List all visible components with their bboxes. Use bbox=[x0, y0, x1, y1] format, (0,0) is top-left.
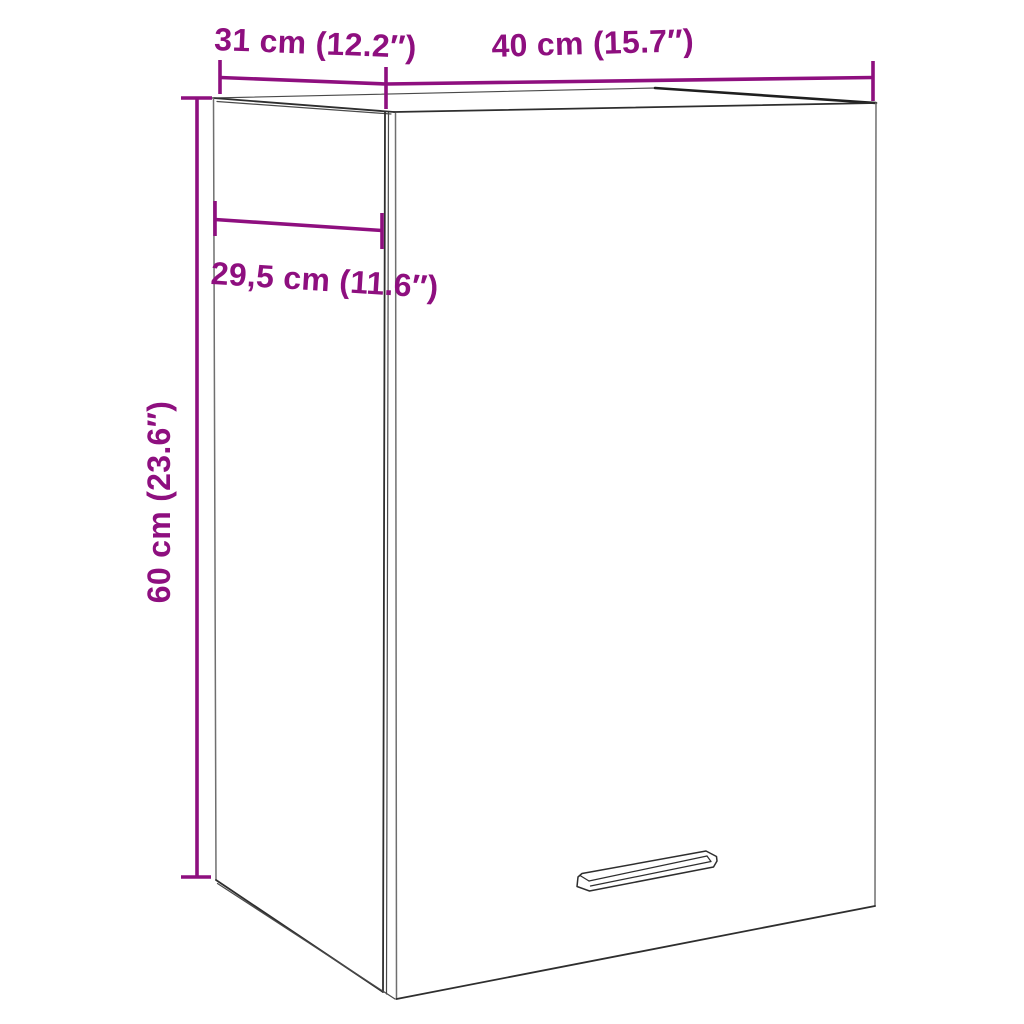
dimension-label-top-width: 40 cm (15.7″) bbox=[491, 22, 694, 64]
cabinet-top-face bbox=[213, 88, 876, 103]
side-top-edge bbox=[213, 98, 394, 112]
diagram-canvas: 31 cm (12.2″) 40 cm (15.7″) 29,5 cm (11.… bbox=[0, 0, 1024, 1024]
dimension-height: 60 cm (23.6″) bbox=[141, 98, 212, 877]
dim-line-top bbox=[220, 78, 873, 85]
top-back-edge bbox=[213, 88, 655, 98]
dimension-annotations: 31 cm (12.2″) 40 cm (15.7″) 29,5 cm (11.… bbox=[141, 21, 873, 877]
dim-line-inner-depth bbox=[215, 220, 382, 231]
side-top-inner-edge bbox=[217, 102, 391, 115]
side-bottom-inner-edge bbox=[218, 884, 396, 1000]
top-right-edge bbox=[655, 88, 876, 103]
cabinet-side-panel bbox=[213, 98, 395, 999]
door-bottom-edge bbox=[397, 906, 876, 999]
dimension-label-height: 60 cm (23.6″) bbox=[141, 401, 177, 603]
door-top-edge bbox=[394, 103, 876, 112]
side-front-inner-edge bbox=[387, 113, 389, 994]
dimension-label-inner-depth: 29,5 cm (11.6″) bbox=[210, 255, 440, 305]
dimension-label-top-depth: 31 cm (12.2″) bbox=[214, 21, 418, 65]
cabinet-dimension-diagram: 31 cm (12.2″) 40 cm (15.7″) 29,5 cm (11.… bbox=[0, 0, 1024, 1024]
door-handle bbox=[577, 851, 717, 891]
door-left-edge bbox=[396, 114, 397, 1000]
dimension-inner-depth: 29,5 cm (11.6″) bbox=[210, 201, 440, 305]
door-right-edge bbox=[875, 103, 876, 906]
